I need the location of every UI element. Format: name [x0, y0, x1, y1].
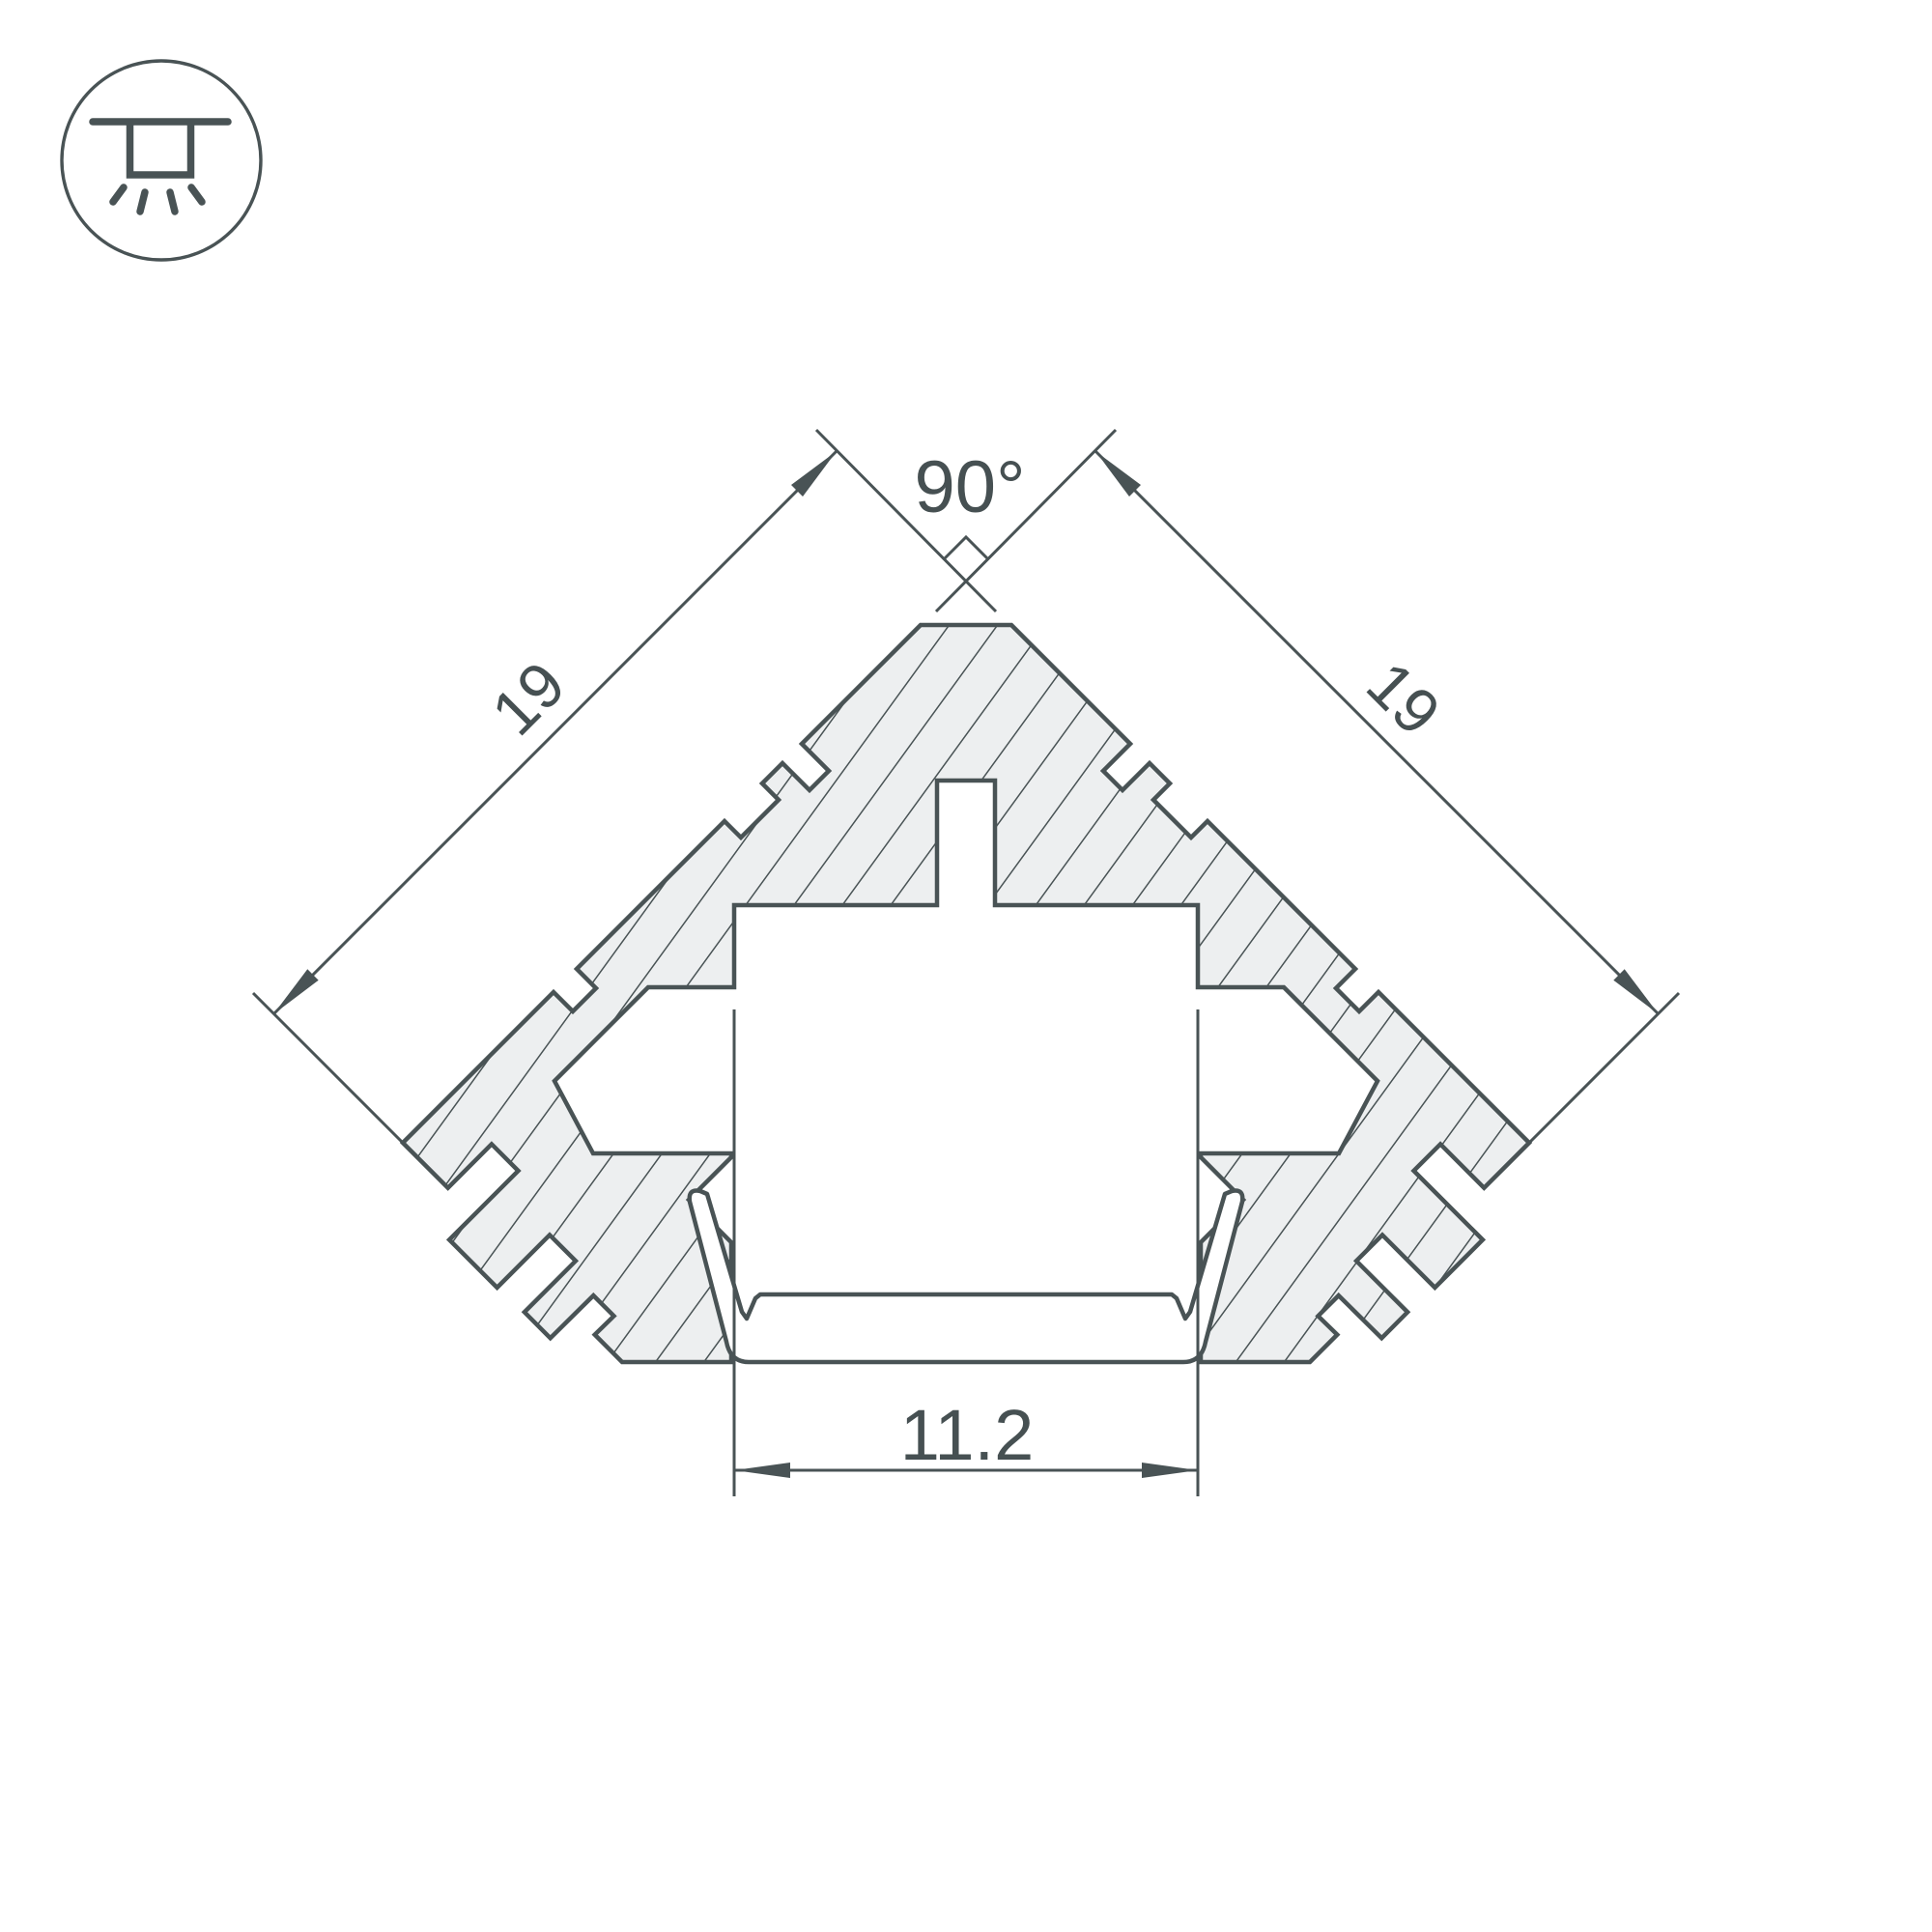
svg-text:11.2: 11.2: [900, 1395, 1035, 1475]
svg-text:90°: 90°: [915, 446, 1026, 528]
